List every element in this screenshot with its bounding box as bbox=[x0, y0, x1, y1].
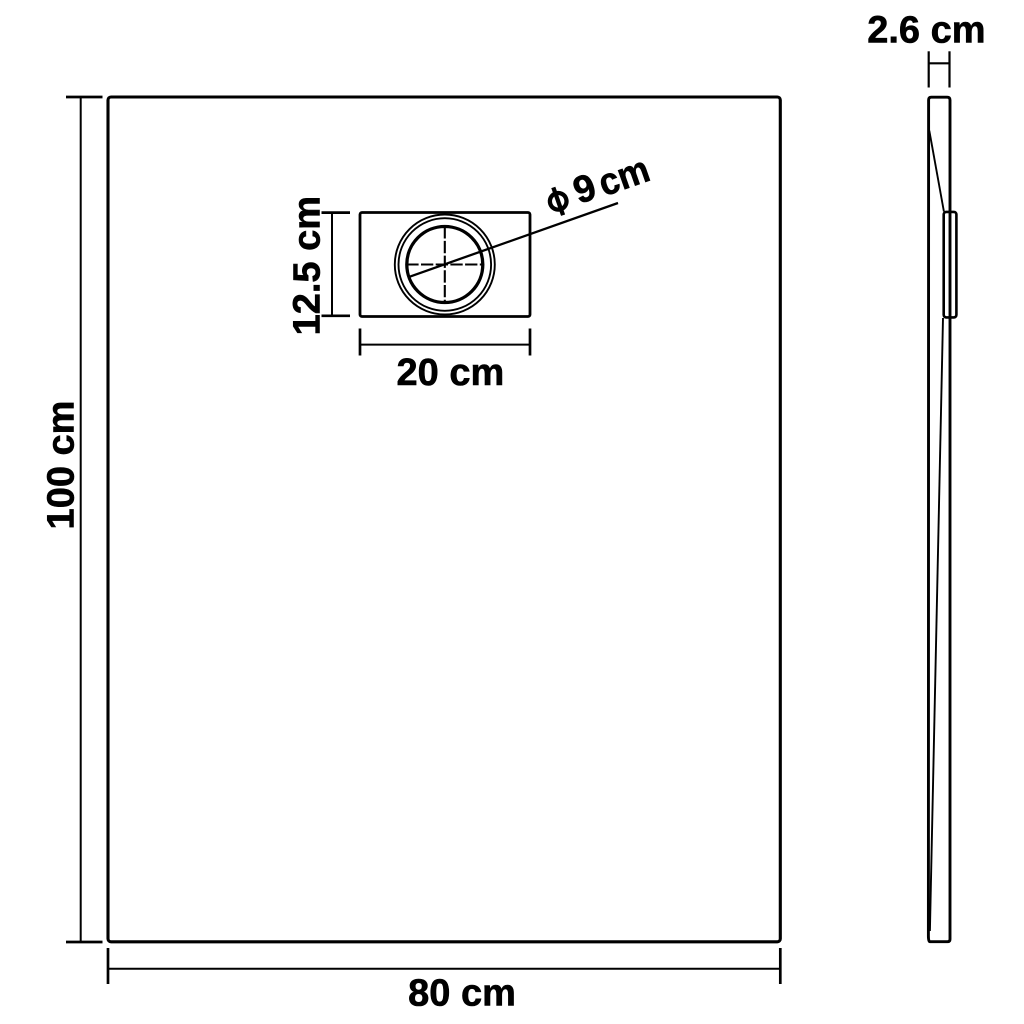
svg-text:100 cm: 100 cm bbox=[41, 401, 83, 530]
svg-text:80 cm: 80 cm bbox=[408, 973, 516, 1015]
svg-text:20 cm: 20 cm bbox=[397, 352, 505, 394]
svg-text:2.6 cm: 2.6 cm bbox=[867, 9, 985, 51]
svg-text:12.5 cm: 12.5 cm bbox=[287, 196, 329, 335]
